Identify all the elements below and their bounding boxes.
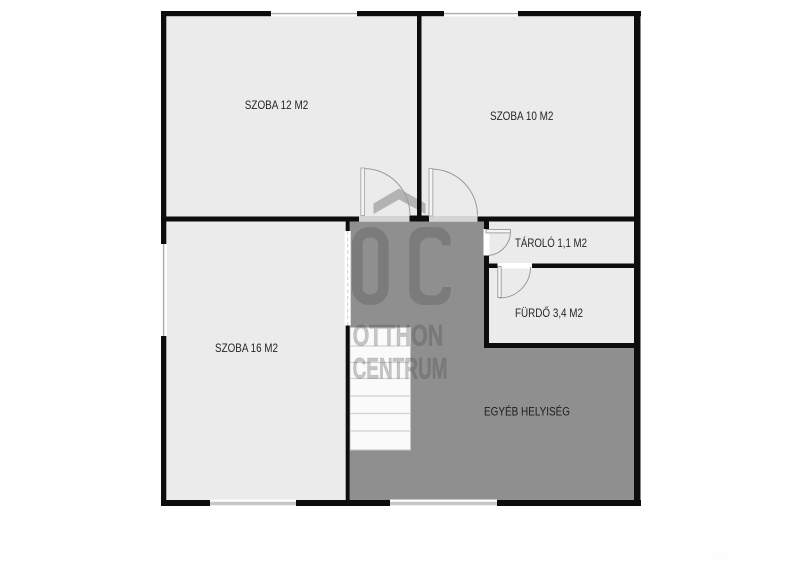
- svg-text:FÜRDŐ 3,4 M2: FÜRDŐ 3,4 M2: [515, 305, 583, 320]
- svg-text:SZOBA 12 M2: SZOBA 12 M2: [245, 98, 309, 112]
- svg-text:EGYÉB HELYISÉG: EGYÉB HELYISÉG: [484, 404, 570, 419]
- svg-text:OTTHON: OTTHON: [353, 320, 444, 353]
- svg-text:SZOBA 16 M2: SZOBA 16 M2: [215, 341, 278, 355]
- svg-text:SZOBA 10 M2: SZOBA 10 M2: [490, 109, 554, 123]
- svg-text:TÁROLÓ 1,1 M2: TÁROLÓ 1,1 M2: [515, 235, 587, 250]
- svg-text:CENTRUM: CENTRUM: [353, 353, 448, 386]
